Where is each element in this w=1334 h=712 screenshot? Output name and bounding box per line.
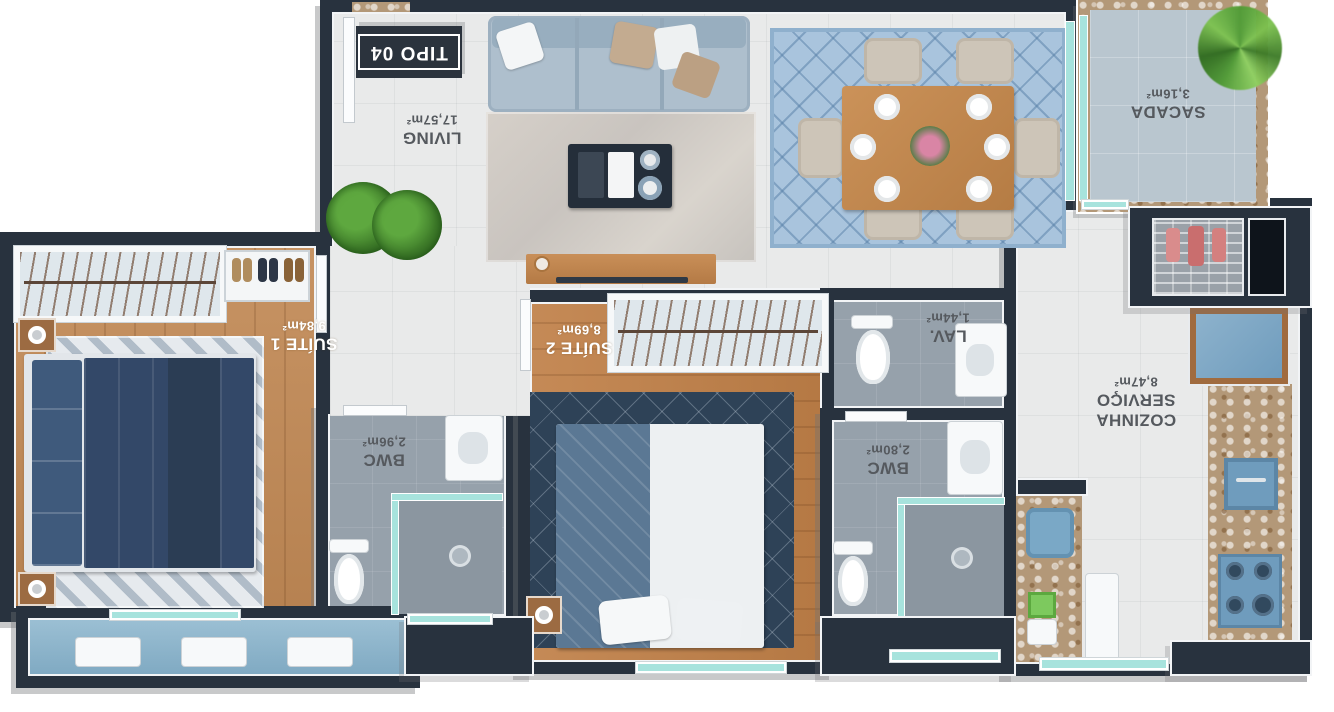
living-name: LIVING [362, 127, 502, 147]
stove-burner [1254, 562, 1272, 580]
suite2-wardrobe [614, 300, 822, 366]
suite1-name: SUÍTE 1 [244, 333, 364, 353]
sacada-glass-rail [1080, 16, 1087, 200]
bwc1-name: BWC [324, 449, 444, 469]
ac-unit [182, 638, 246, 666]
suite1-lamp [28, 326, 46, 344]
tv [556, 277, 688, 283]
suite2-pillow [598, 594, 672, 645]
service-window [1040, 658, 1168, 670]
suite2-area: 8,69m² [524, 322, 634, 337]
plate [874, 176, 900, 202]
suite2-wardrobe-rail [618, 330, 818, 333]
bwc1-shower-glass [392, 494, 398, 614]
lav-area: 1,44m² [893, 310, 1003, 325]
lav-label: LAV. 1,44m² [893, 310, 1003, 345]
bwc1-shower-glass [392, 494, 502, 500]
kitchen-window [1082, 200, 1128, 209]
suite1-bed-throw [168, 358, 220, 568]
plate [966, 176, 992, 202]
dining-chair [1014, 118, 1060, 178]
bbq-vent [1250, 220, 1284, 294]
dining-chair [956, 38, 1014, 84]
bwc1-door [344, 406, 406, 415]
dining-chair [864, 38, 922, 84]
service-window-2 [890, 650, 1000, 662]
sacada-area: 3,16m² [1108, 86, 1228, 101]
bottom-wall-block [404, 616, 534, 676]
plate [850, 134, 876, 160]
kitchen-peninsula-wall [1016, 478, 1088, 496]
plate [966, 94, 992, 120]
dining-chair [798, 118, 844, 178]
shoe [284, 258, 293, 282]
suite1-label: SUÍTE 1 9,84m² [244, 318, 364, 353]
lav-toilet-tank [852, 316, 892, 328]
plant-bush [372, 190, 442, 260]
bbq-meat [1188, 226, 1204, 266]
kitchen-corner-wall [1170, 640, 1312, 676]
living-area: 17,57m² [362, 112, 502, 127]
shoe [232, 258, 241, 282]
bwc2-door [846, 412, 906, 421]
sofa-seam [575, 18, 579, 110]
bwc2-shower [898, 498, 1004, 616]
kitchen-area: 8,47m² [1076, 374, 1196, 389]
suite2-lamp [535, 606, 553, 624]
lav-basin [966, 344, 994, 376]
sacada-label: SACADA 3,16m² [1108, 86, 1228, 121]
shoe [295, 258, 304, 282]
palm-plant [1198, 6, 1282, 90]
cabinet-blue-top [1196, 314, 1282, 378]
sofa-pillow-tan [609, 20, 660, 69]
kitchen-name-1: COZINHA [1076, 409, 1196, 429]
bwc2-label: BWC 2,80m² [828, 442, 948, 477]
bwc1-label: BWC 2,96m² [324, 434, 444, 469]
bwc1-area: 2,96m² [324, 434, 444, 449]
ac-unit [288, 638, 352, 666]
sacada-name: SACADA [1108, 101, 1228, 121]
plate [984, 134, 1010, 160]
suite1-bed-pillows [32, 360, 82, 566]
suite2-window [636, 662, 786, 673]
stove-burner [1226, 562, 1244, 580]
sacada-sliding-door [1066, 22, 1074, 200]
kitchen-label: COZINHA SERVIÇO 8,47m² [1076, 374, 1196, 429]
bwc1-toilet [334, 554, 364, 604]
shoe [243, 258, 252, 282]
plate [874, 94, 900, 120]
suite2-label: SUÍTE 2 8,69m² [524, 322, 634, 357]
floor-plan: TIPO 04 LIVING 17,57m² SACADA 3,16m² COZ… [0, 0, 1334, 712]
laundry-tank-sink [1026, 508, 1074, 558]
bwc2-toilet-tank [834, 542, 872, 554]
bwc1-toilet-tank [330, 540, 368, 552]
entry-door [344, 18, 354, 122]
suite1-area: 9,84m² [244, 318, 364, 333]
washing-machine [1086, 574, 1118, 660]
coffee-table-magazine [578, 152, 604, 198]
shoe [258, 258, 267, 282]
type-badge-label: TIPO 04 [358, 34, 460, 70]
bwc1-shower [392, 494, 502, 614]
bbq-meat [1166, 228, 1180, 262]
bwc2-shower-glass [898, 498, 904, 616]
stove-burner [1252, 594, 1274, 616]
kitchen-name-2: SERVIÇO [1076, 389, 1196, 409]
kitchen-faucet [1236, 478, 1266, 482]
type-badge: TIPO 04 [356, 26, 462, 78]
table-centerpiece-flowers [910, 126, 950, 166]
bwc2-basin [960, 440, 990, 474]
entry-threshold [352, 2, 410, 12]
bwc1-window [408, 614, 492, 624]
coffee-table-bowl [638, 176, 662, 200]
suite1-window [110, 610, 240, 620]
bwc2-drain [954, 550, 970, 566]
bwc2-shower-glass [898, 498, 1004, 504]
bwc2-area: 2,80m² [828, 442, 948, 457]
coffee-table-book [608, 152, 634, 198]
bwc2-toilet [838, 556, 868, 606]
service-bottom-wall [820, 616, 1016, 676]
suite1-wardrobe [20, 252, 220, 316]
suite1-lamp [28, 580, 46, 598]
bbq-meat [1212, 228, 1226, 262]
ac-unit [76, 638, 140, 666]
bwc2-name: BWC [828, 457, 948, 477]
kitchen-sink [1224, 458, 1278, 510]
trash-bin-white [1028, 620, 1056, 644]
suite2-name: SUÍTE 2 [524, 337, 634, 357]
suite2-pillow [674, 597, 743, 645]
suite1-wardrobe-rail [24, 281, 216, 284]
bwc1-basin [458, 432, 488, 464]
lav-name: LAV. [893, 325, 1003, 345]
living-label: LIVING 17,57m² [362, 112, 502, 147]
shoe [269, 258, 278, 282]
stove-burner [1226, 596, 1244, 614]
bwc1-drain [452, 548, 468, 564]
trash-bin-green [1028, 592, 1056, 618]
console-decor [536, 258, 548, 270]
coffee-table-bowl [640, 150, 660, 170]
lav-toilet [856, 330, 890, 384]
